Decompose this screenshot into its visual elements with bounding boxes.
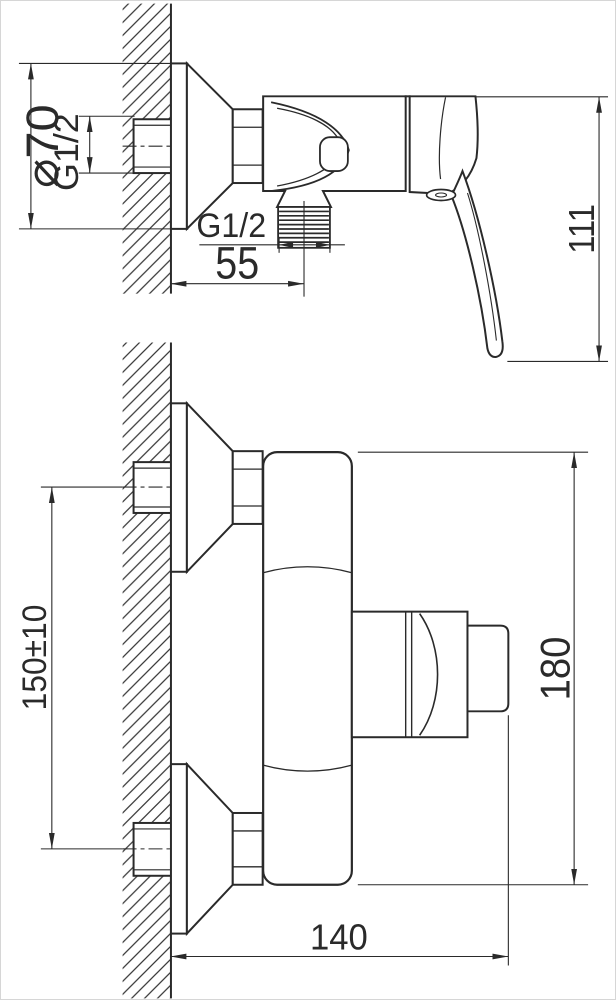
dim-overall-width-label: 140 [310, 918, 368, 958]
technical-drawing: ⌀70 G1/2 G1/2 55 111 [0, 0, 616, 1000]
cartridge-housing [352, 612, 468, 738]
dim-connection-spacing-label: 150±10 [16, 605, 54, 711]
drawing-canvas: ⌀70 G1/2 G1/2 55 111 [1, 1, 615, 999]
escutcheon-flange-side [171, 63, 187, 228]
dim-height-label: 111 [562, 204, 602, 254]
front-view: 150±10 180 140 [16, 343, 588, 999]
hex-nut-lower [233, 813, 263, 885]
dim-wall-thread: G1/2 [48, 113, 135, 191]
escutcheon-cone-side [187, 63, 233, 228]
dim-overall-height-label: 180 [532, 637, 579, 701]
diverter-knob [427, 190, 456, 201]
side-view: ⌀70 G1/2 G1/2 55 111 [16, 4, 608, 362]
dim-connection-spacing: 150±10 [16, 487, 123, 849]
dim-wall-thread-label: G1/2 [48, 113, 86, 191]
handle-end-cap [467, 626, 508, 712]
mixer-body-front [263, 452, 352, 885]
escutcheon-flange-lower [171, 764, 187, 933]
hex-nut-side [233, 109, 263, 183]
escutcheon-cone-upper [187, 403, 233, 571]
dim-outlet-offset-label: 55 [215, 237, 259, 289]
hex-nut-upper [233, 451, 263, 524]
wall-hatch-bottom [123, 343, 171, 999]
escutcheon-flange-upper [171, 403, 187, 571]
escutcheon-cone-lower [187, 764, 233, 933]
